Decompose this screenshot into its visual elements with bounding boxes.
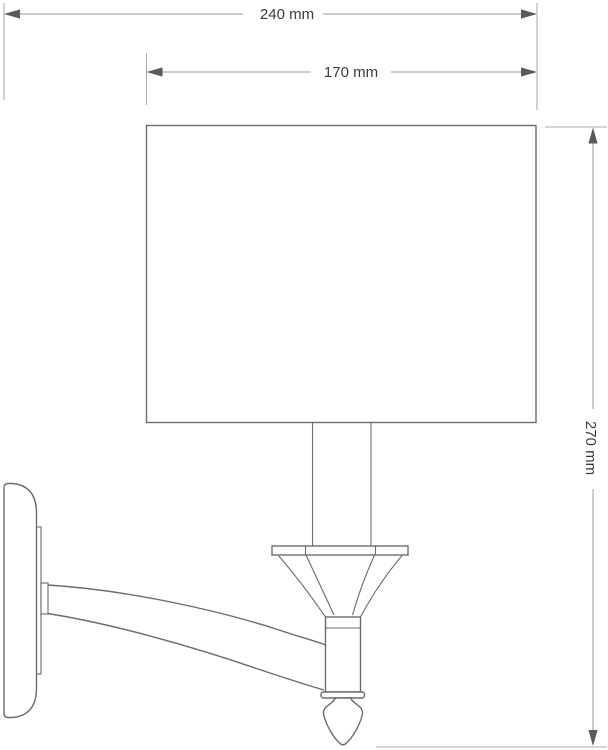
candle-assembly — [272, 546, 408, 745]
arm-top-edge — [48, 585, 327, 645]
collar-ring — [321, 692, 365, 698]
arrow-up-icon — [588, 128, 597, 144]
wall-lamp-drawing — [4, 126, 536, 745]
bobeche-plate — [272, 546, 408, 555]
arrow-down-icon — [588, 730, 597, 746]
wall-mount — [4, 484, 41, 718]
arrow-left-icon — [147, 67, 163, 76]
flare-inner-right — [353, 555, 375, 615]
arm-connector-block — [41, 583, 48, 614]
lampshade — [147, 126, 537, 423]
overall-height-label: 270 mm — [582, 421, 599, 475]
arm — [41, 583, 326, 690]
dimension-shade-width: 170 mm — [147, 53, 538, 105]
wall-plate — [4, 484, 37, 718]
sconce-diagram: 240 mm 170 mm 270 mm — [0, 0, 608, 750]
shade-width-label: 170 mm — [324, 64, 378, 81]
technical-drawing: 240 mm 170 mm 270 mm — [0, 0, 608, 750]
arm-bottom-edge — [48, 614, 325, 691]
overall-width-label: 240 mm — [260, 6, 314, 23]
flare-inner-left — [306, 555, 334, 615]
arrow-left-icon — [4, 9, 20, 18]
candle-tube — [313, 423, 372, 546]
flare-outer-right — [361, 555, 403, 617]
dimension-overall-height: 270 mm — [376, 127, 607, 747]
arrow-right-icon — [521, 67, 537, 76]
arrow-right-icon — [521, 9, 537, 18]
flare-outer-left — [278, 555, 326, 617]
finial — [324, 698, 363, 745]
dimension-overall-width: 240 mm — [4, 3, 537, 110]
